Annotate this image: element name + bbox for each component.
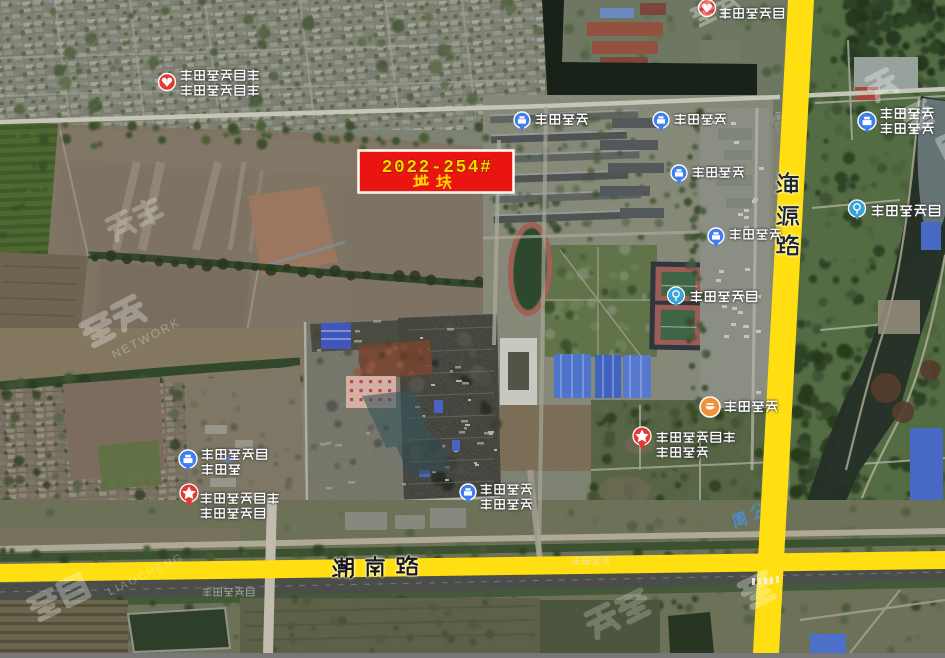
svg-text:2022-254#: 2022-254# <box>382 158 493 178</box>
